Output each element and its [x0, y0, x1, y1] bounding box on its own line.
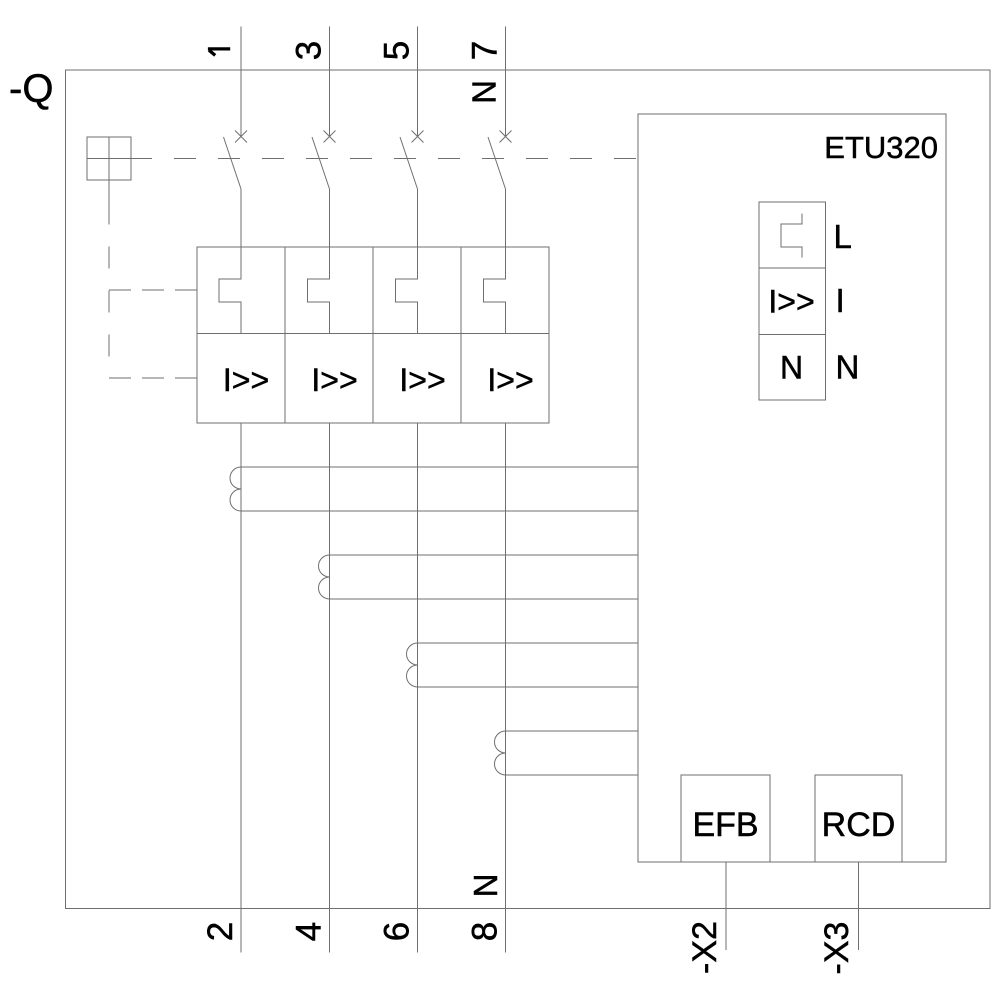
svg-text:4: 4 — [290, 922, 329, 941]
svg-text:3: 3 — [290, 41, 329, 60]
svg-text:EFB: EFB — [692, 806, 758, 844]
svg-text:N: N — [836, 349, 860, 386]
svg-text:I>>: I>> — [223, 362, 269, 398]
svg-text:N: N — [467, 874, 504, 898]
svg-text:I: I — [836, 282, 845, 319]
svg-text:I>>: I>> — [311, 362, 357, 398]
svg-text:5: 5 — [378, 41, 417, 60]
svg-text:N: N — [466, 80, 503, 104]
svg-text:RCD: RCD — [822, 806, 896, 844]
svg-text:N: N — [780, 350, 803, 386]
svg-text:6: 6 — [378, 922, 417, 941]
svg-text:2: 2 — [201, 922, 240, 941]
svg-text:8: 8 — [466, 922, 505, 941]
svg-text:7: 7 — [466, 41, 505, 60]
svg-text:I>>: I>> — [487, 362, 533, 398]
svg-text:I>>: I>> — [399, 362, 445, 398]
svg-text:-X3: -X3 — [818, 922, 856, 975]
svg-text:I>>: I>> — [768, 284, 814, 320]
svg-text:-X2: -X2 — [686, 921, 724, 974]
svg-text:ETU320: ETU320 — [824, 130, 938, 165]
svg-text:-Q: -Q — [9, 67, 53, 111]
svg-text:L: L — [834, 218, 852, 255]
